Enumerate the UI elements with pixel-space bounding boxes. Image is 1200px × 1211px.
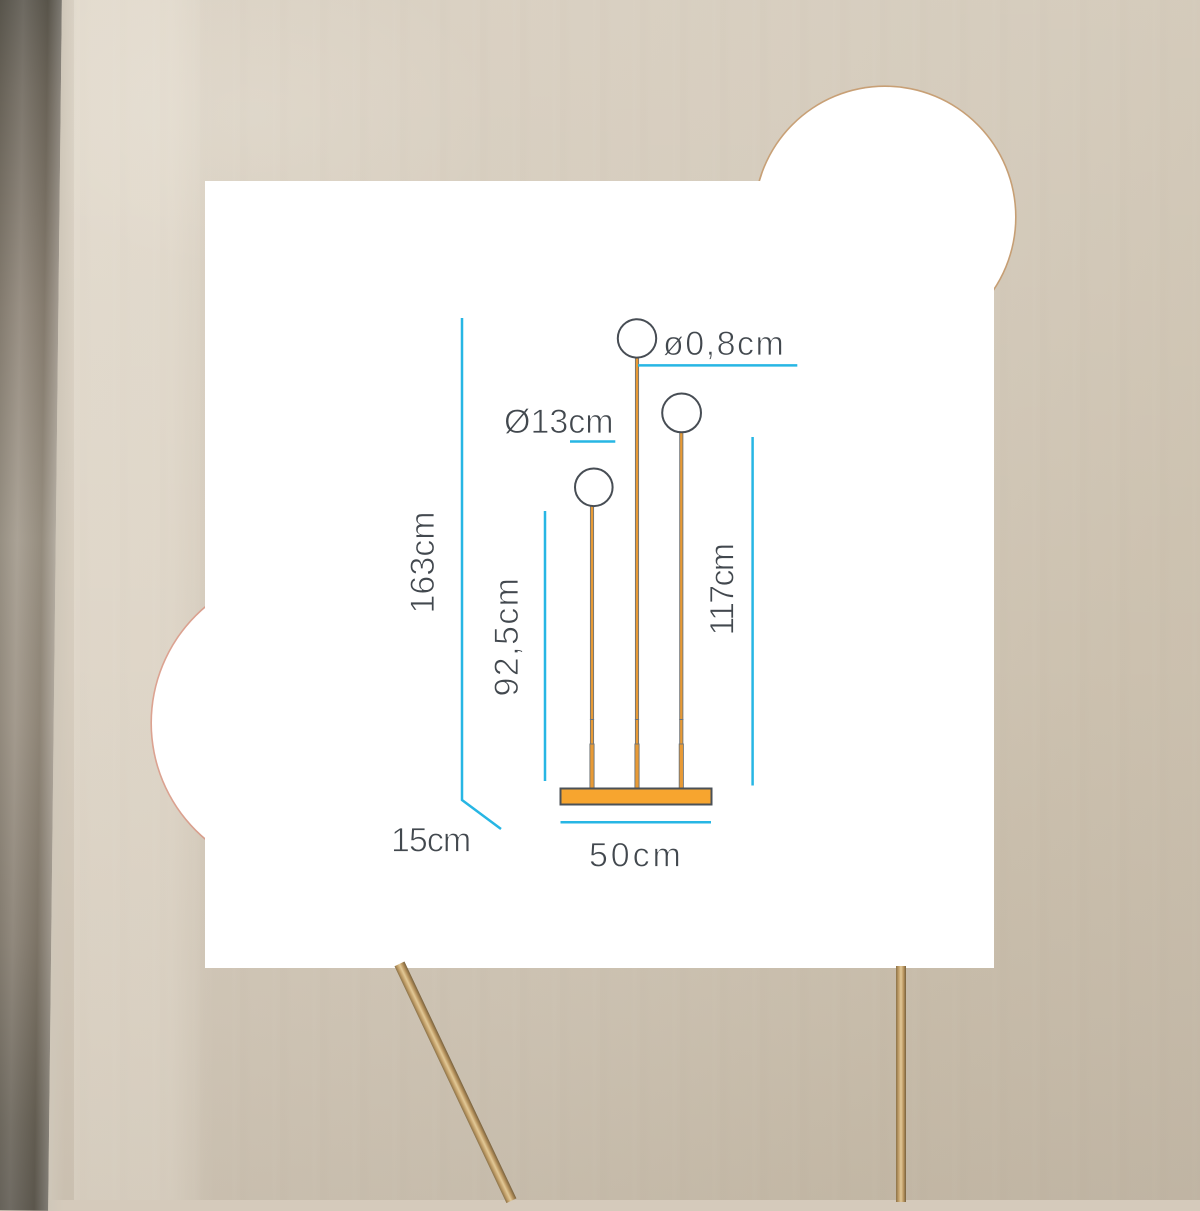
svg-text:163cm: 163cm: [404, 511, 442, 613]
svg-text:92,5cm: 92,5cm: [488, 577, 526, 697]
svg-text:ø0,8cm: ø0,8cm: [663, 325, 785, 363]
svg-text:15cm: 15cm: [391, 822, 470, 860]
svg-text:117cm: 117cm: [704, 544, 742, 635]
svg-text:50cm: 50cm: [589, 837, 684, 875]
svg-text:Ø13cm: Ø13cm: [504, 403, 614, 441]
